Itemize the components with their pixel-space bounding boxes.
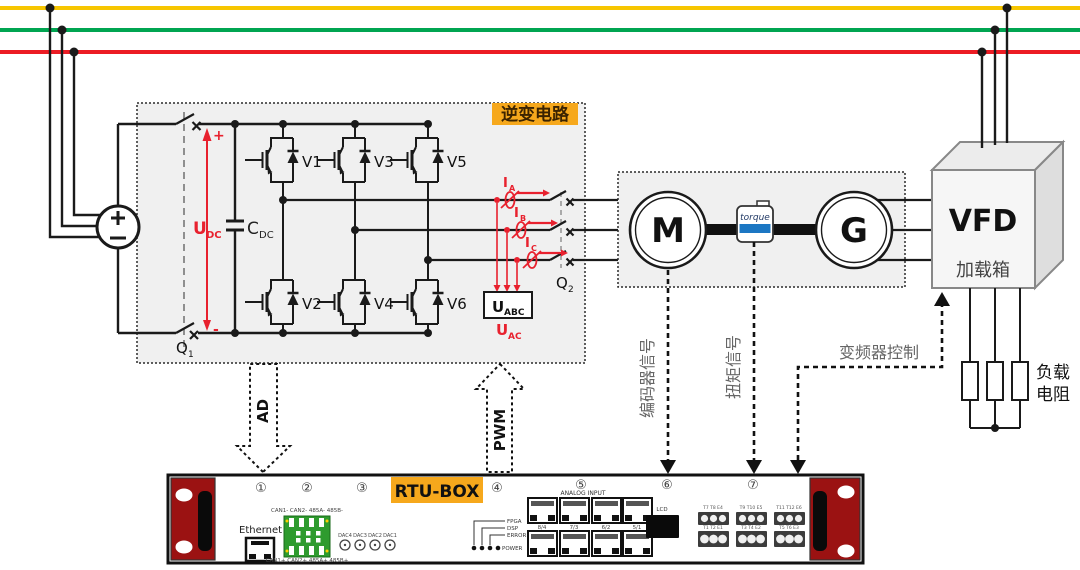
rtu-term-bottom-2: T3 T4 E2	[740, 525, 761, 531]
label-torque-sensor: torque	[740, 213, 770, 223]
rtu-num-1: ①	[255, 481, 267, 496]
rtu-ethernet-label: Ethernet	[239, 525, 282, 536]
label-ic-sub: C	[531, 244, 537, 253]
rtu-green-top-label: CAN1- CAN2- 485A- 485B-	[271, 508, 343, 514]
rtu-num-2: ②	[301, 481, 313, 496]
label-ic: I	[525, 236, 530, 251]
bus-drops-right	[978, 4, 1012, 149]
label-torque-signal: 扭矩信号	[725, 335, 743, 399]
label-ad: AD	[254, 399, 272, 423]
power-electronics-test-bench-diagram: 逆变电路 V1 V3 V5 V2 V4 V6 + - U DC C DC Q 1…	[0, 0, 1080, 570]
rtu-green-bottom-label: CAN1+ CAN2+ 485A+ 485B+	[266, 558, 349, 564]
rtu-rj45-label-4: 5/1	[633, 525, 642, 531]
label-v2: V2	[302, 295, 322, 313]
label-motor: M	[651, 211, 685, 251]
can-485-terminal-block	[284, 516, 330, 557]
rtu-num-4: ④	[491, 481, 503, 496]
rtu-term-top-1: T7 T8 E4	[702, 505, 723, 511]
bus-drops-left	[46, 4, 101, 238]
label-udc: U	[193, 219, 207, 239]
rtu-title: RTU-BOX	[395, 482, 480, 502]
label-q1-sub: 1	[188, 350, 194, 360]
label-ib: I	[514, 206, 519, 221]
rtu-rj45-label-1: 8/4	[538, 525, 547, 531]
label-v5: V5	[447, 153, 467, 171]
diagram-canvas: 逆变电路 V1 V3 V5 V2 V4 V6 + - U DC C DC Q 1…	[0, 0, 1080, 570]
rtu-led-error: ERROR	[507, 533, 526, 539]
label-load-1: 负载	[1036, 363, 1070, 382]
label-q2-sub: 2	[568, 285, 574, 295]
label-encoder-signal: 编码器信号	[639, 338, 657, 418]
rtu-rj45-label-2: 7/3	[570, 525, 579, 531]
dc-source	[97, 206, 139, 248]
torque-blue-stripe	[740, 224, 771, 233]
vfd-control-arrow	[790, 292, 950, 474]
rtu-term-top-3: T11 T12 E6	[775, 505, 802, 511]
label-v3: V3	[374, 153, 394, 171]
rtu-dac1: DAC1	[383, 533, 397, 539]
label-pwm: PWM	[491, 409, 509, 451]
rtu-term-bottom-3: T5 T6 E3	[778, 525, 799, 531]
label-cdc-sub: DC	[259, 230, 274, 241]
rtu-num-3: ③	[356, 481, 368, 496]
rtu-led-power: POWER	[502, 546, 523, 552]
label-q2: Q	[556, 274, 568, 292]
load-resistors	[962, 288, 1028, 432]
rtu-led-fpga: FPGA	[507, 519, 522, 525]
label-q1: Q	[176, 339, 188, 357]
udc-plus: +	[213, 128, 225, 144]
rtu-lcd-label: LCD	[656, 507, 667, 513]
inverter-title: 逆变电路	[501, 104, 570, 124]
rtu-dac2: DAC2	[368, 533, 382, 539]
label-v6: V6	[447, 295, 467, 313]
udc-minus: -	[213, 322, 219, 338]
label-vfd: VFD	[949, 204, 1018, 239]
rtu-num-7: ⑦	[747, 478, 759, 493]
encoder-signal-arrow	[660, 270, 676, 474]
rtu-dac3: DAC3	[353, 533, 367, 539]
rtu-num-6: ⑥	[661, 478, 673, 493]
supply-buses	[0, 8, 1080, 52]
rtu-dac4: DAC4	[338, 533, 352, 539]
label-generator: G	[840, 211, 868, 251]
label-uabc: U	[492, 298, 504, 316]
rtu-term-top-2: T9 T10 E5	[739, 505, 763, 511]
label-vfd-subtitle: 加载箱	[956, 260, 1010, 280]
label-ia: I	[503, 176, 508, 191]
label-ia-sub: A	[509, 184, 516, 193]
label-udc-sub: DC	[206, 230, 222, 241]
lcd-screen	[646, 515, 679, 538]
rtu-analog-input-label: ANALOG INPUT	[560, 490, 605, 497]
label-vfd-control: 变频器控制	[839, 344, 919, 362]
label-uac: U	[496, 321, 508, 339]
label-v1: V1	[302, 153, 322, 171]
label-load-2: 电阻	[1036, 385, 1070, 404]
label-cdc: C	[247, 219, 259, 239]
rtu-rj45-label-3: 6/2	[602, 525, 611, 531]
label-uabc-sub: ABC	[504, 308, 525, 318]
label-uac-sub: AC	[508, 332, 522, 342]
label-ib-sub: B	[520, 214, 526, 223]
label-v4: V4	[374, 295, 394, 313]
rtu-led-dsp: DSP	[507, 526, 519, 532]
rtu-term-bottom-1: T1 T2 E1	[702, 525, 723, 531]
